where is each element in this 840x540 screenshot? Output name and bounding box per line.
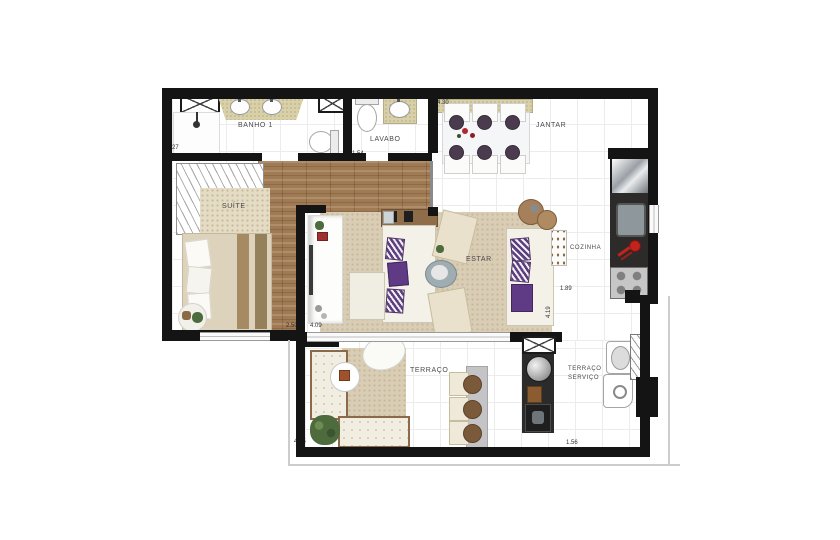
stool-top-icon (463, 424, 482, 443)
place-setting-icon (449, 115, 464, 130)
wall-right-lower2 (640, 300, 650, 447)
bar-sink (525, 404, 551, 432)
flowers-icon (457, 134, 461, 138)
terraco-servico-label-2: SERVIÇO (568, 375, 599, 381)
shower-head-icon (193, 121, 200, 128)
wall-banho-bottom-a (166, 153, 262, 161)
floor-plan: SUÍTE BANHO 1 3.27 LAVABO 1.54 JANTAR 4.… (0, 0, 840, 540)
decor-box-icon (317, 232, 328, 241)
wall-cozinha-servico (625, 290, 640, 303)
kitchen-sink-icon (616, 203, 646, 237)
coffee-table-tray (431, 265, 448, 280)
cozinha-label: COZINHA (570, 245, 601, 251)
banho1-label: BANHO 1 (238, 122, 273, 129)
speaker-icon (404, 211, 413, 222)
slab-edge-bottom (288, 464, 680, 466)
wall-foyer-stub (428, 207, 438, 216)
tv-icon (309, 245, 313, 295)
wall-suite-estar-stub (296, 205, 326, 213)
decor-box-icon (339, 370, 350, 381)
plant-icon (436, 245, 444, 253)
suite-window (200, 332, 270, 341)
place-setting-icon (477, 145, 492, 160)
vase-icon (315, 305, 322, 312)
place-setting-icon (505, 115, 520, 130)
wall-right-upper (648, 99, 658, 300)
wall-bottom-terraco (296, 447, 650, 457)
flowers-icon (470, 133, 475, 138)
service-pillar (636, 377, 658, 417)
plant-icon (192, 312, 203, 323)
washing-machine (603, 374, 633, 408)
wall-suite-estar (296, 213, 305, 330)
dim-estar-depth: 4.19 (546, 306, 552, 318)
sink-icon (532, 411, 544, 424)
tank-basin-icon (611, 346, 630, 370)
flowers-icon (462, 128, 468, 134)
vase-icon (321, 313, 327, 319)
kitchen-window (649, 205, 659, 233)
lavabo-label: LAVABO (370, 136, 401, 143)
wall-lavabo-bottom (388, 153, 432, 161)
suite-label: SUÍTE (222, 203, 246, 210)
jantar-label: JANTAR (536, 122, 566, 129)
place-setting-icon (477, 115, 492, 130)
dim-jantar: 4.30 (437, 100, 449, 106)
decor-bowl-icon (530, 204, 539, 213)
basket-icon (182, 311, 191, 320)
estar-label: ESTAR (466, 256, 492, 263)
entry-door-leaf (430, 161, 433, 209)
wall-lavabo-jantar (428, 99, 438, 153)
shaft-box-icon (522, 336, 556, 354)
place-setting-icon (505, 145, 520, 160)
bar-cart (551, 230, 567, 266)
refrigerator (610, 153, 652, 197)
terraco-bench (338, 416, 410, 448)
terraco-label: TERRAÇO (410, 367, 448, 374)
slab-edge-right (668, 296, 670, 466)
terraco-servico-label-1: TERRAÇO (568, 366, 602, 372)
washer-door-icon (613, 385, 627, 399)
dim-servico: 1.56 (566, 440, 578, 446)
sofa-pillow (511, 284, 533, 312)
entry-wood-floor (258, 161, 430, 213)
estar-sliding-door (306, 332, 516, 342)
slab-edge-left (288, 340, 290, 466)
bed-runner (237, 234, 249, 329)
chair (527, 386, 542, 403)
toilet-icon (357, 104, 377, 132)
suite-round-rug (178, 303, 207, 332)
sofa-pillow (510, 260, 531, 283)
sofa-pillow (510, 237, 531, 262)
estar-sofa-chaise (349, 272, 385, 320)
wall-top (162, 88, 658, 99)
wall-banho-lavabo (343, 99, 352, 153)
dim-estar: 4.09 (310, 323, 322, 329)
bed-pillow (186, 266, 213, 295)
door-jamb (300, 332, 307, 342)
wall-terraco-left (296, 338, 305, 447)
sink-icon (389, 101, 410, 118)
stool-top-icon (463, 375, 482, 394)
wall-kitchen-top (608, 148, 658, 159)
bed-runner (255, 234, 267, 329)
dim-cozinha: 1.89 (560, 286, 572, 292)
plant-icon (310, 415, 340, 445)
stool-top-icon (463, 400, 482, 419)
wall-banho-bottom-b (298, 153, 366, 161)
sofa-pillow (385, 237, 405, 261)
toilet-tank (330, 130, 339, 154)
decor-box-icon (383, 211, 394, 224)
side-table (537, 210, 557, 230)
sofa-pillow (387, 261, 409, 287)
plant-icon (315, 221, 324, 230)
grill-icon (526, 356, 552, 382)
place-setting-icon (449, 145, 464, 160)
sofa-pillow (385, 288, 405, 313)
wall-left (162, 99, 172, 341)
